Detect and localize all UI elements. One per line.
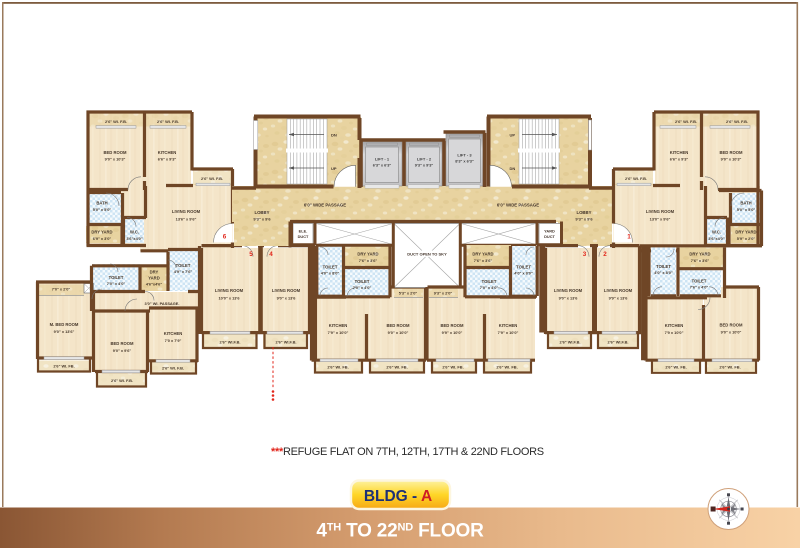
svg-text:2'6" WI. F.B.: 2'6" WI. F.B. [111,378,133,383]
svg-text:W.C.: W.C. [712,230,721,235]
svg-text:2'6" WI. FB.: 2'6" WI. FB. [53,364,74,369]
svg-text:TOILET: TOILET [355,279,370,284]
svg-text:***REFUGE FLAT ON 7TH, 12TH,: ***REFUGE FLAT ON 7TH, 12TH, 17TH & 22ND… [271,446,544,458]
svg-text:LOBBY: LOBBY [254,210,269,215]
svg-text:7'6" x 3'6": 7'6" x 3'6" [359,258,378,263]
svg-text:BED ROOM: BED ROOM [110,341,134,346]
svg-text:7'0" x 2'0": 7'0" x 2'0" [52,287,71,292]
svg-text:2'6" WI. F.B.: 2'6" WI. F.B. [105,119,127,124]
svg-text:7'0" x 4'0": 7'0" x 4'0" [107,281,126,286]
svg-text:DRY YARD: DRY YARD [357,252,378,257]
svg-text:2'6" WI. FB.: 2'6" WI. FB. [719,365,740,370]
svg-text:9'3" x 9'3": 9'3" x 9'3" [415,163,434,168]
svg-text:TOILET: TOILET [109,275,124,280]
svg-text:DRY YARD: DRY YARD [689,252,710,257]
svg-text:BLDG - A: BLDG - A [364,488,432,505]
svg-text:2'6" WI.F.B.: 2'6" WI.F.B. [608,340,629,345]
svg-text:UP: UP [331,166,337,171]
svg-text:LIFT - 2: LIFT - 2 [417,157,432,162]
svg-text:9'3" x 9'6: 9'3" x 9'6 [253,217,271,222]
svg-text:TOILET: TOILET [323,265,338,270]
svg-text:ELE.: ELE. [299,229,308,234]
svg-text:DN: DN [510,166,516,171]
svg-text:5'0" x 5'0": 5'0" x 5'0" [93,207,112,212]
svg-text:LOBBY: LOBBY [576,210,591,215]
svg-text:6'0" WIDE PASSAGE: 6'0" WIDE PASSAGE [497,203,539,208]
svg-text:9'0" x 9'6": 9'0" x 9'6" [113,348,132,353]
svg-text:TOILET: TOILET [516,265,531,270]
svg-text:9'3" x 2'0": 9'3" x 2'0" [434,291,453,296]
svg-text:5'3" x 2'0": 5'3" x 2'0" [399,291,418,296]
svg-text:TOILET: TOILET [482,279,497,284]
svg-text:LIVING ROOM: LIVING ROOM [646,209,675,214]
svg-text:BED ROOM: BED ROOM [719,323,743,328]
svg-text:M. BED ROOM: M. BED ROOM [50,322,79,327]
svg-text:YARD: YARD [544,229,555,234]
svg-text:2'6" WI. F.B.: 2'6" WI. F.B. [162,366,184,371]
svg-text:6'9" x 3'0": 6'9" x 3'0" [93,236,112,241]
svg-text:LIVING ROOM: LIVING ROOM [172,209,201,214]
svg-text:2'6" WI. FB.: 2'6" WI. FB. [442,365,463,370]
svg-text:LIVING ROOM: LIVING ROOM [272,288,301,293]
svg-text:BED ROOM: BED ROOM [719,150,743,155]
svg-text:4'0" x 8'0": 4'0" x 8'0" [514,271,533,276]
svg-text:7'0" x 4'0": 7'0" x 4'0" [480,285,499,290]
svg-text:9'0" x 13'6": 9'0" x 13'6" [54,329,75,334]
svg-text:DUCT: DUCT [544,234,555,239]
svg-text:7'9" x 10'0": 7'9" x 10'0" [498,330,519,335]
svg-text:5'0" x 5'0": 5'0" x 5'0" [737,207,756,212]
svg-text:UP: UP [510,133,516,138]
svg-text:9'3" x 9'6: 9'3" x 9'6 [575,217,593,222]
svg-text:LIFT - 1: LIFT - 1 [375,157,390,162]
svg-text:5: 5 [249,251,253,258]
svg-text:6: 6 [223,234,227,241]
svg-text:9'9" x 10'0": 9'9" x 10'0" [442,330,463,335]
svg-text:KITCHEN: KITCHEN [499,323,518,328]
svg-text:BED ROOM: BED ROOM [386,323,410,328]
svg-text:3'6"x4'0": 3'6"x4'0" [126,236,143,241]
svg-text:2'6" WI.F.B.: 2'6" WI.F.B. [276,340,297,345]
svg-text:KITCHEN: KITCHEN [665,323,684,328]
svg-text:2'6" WI. F.B.: 2'6" WI. F.B. [201,176,223,181]
svg-text:4: 4 [269,251,273,258]
svg-text:2'6" WI. F.B.: 2'6" WI. F.B. [675,119,697,124]
svg-text:3'6"x4'0": 3'6"x4'0" [708,236,725,241]
svg-text:W.C.: W.C. [130,230,139,235]
svg-text:9'0" x 10'0": 9'0" x 10'0" [721,330,742,335]
svg-text:TOILET: TOILET [176,263,191,268]
svg-text:2'6" WI.F.B.: 2'6" WI.F.B. [220,340,241,345]
svg-text:7'6" x 3'6": 7'6" x 3'6" [691,258,710,263]
svg-text:9'0" x 13'6: 9'0" x 13'6 [559,296,579,301]
svg-text:KITCHEN: KITCHEN [164,331,183,336]
svg-text:LIVING ROOM: LIVING ROOM [554,288,583,293]
svg-text:DRY YARD: DRY YARD [91,230,112,235]
svg-text:DRY YARD: DRY YARD [735,230,756,235]
svg-text:KITCHEN: KITCHEN [329,323,348,328]
svg-text:9'0" x 13'6: 9'0" x 13'6 [277,296,297,301]
svg-text:DRY YARD: DRY YARD [472,252,493,257]
svg-text:2'6" WI.F.B.: 2'6" WI.F.B. [560,340,581,345]
svg-text:5'9" x 2'0": 5'9" x 2'0" [737,236,756,241]
svg-text:7'0" x 4'0": 7'0" x 4'0" [353,285,372,290]
svg-text:LIVING ROOM: LIVING ROOM [215,288,244,293]
svg-text:6'0" WIDE PASSAGE: 6'0" WIDE PASSAGE [304,203,346,208]
svg-text:4'0" x 8'0": 4'0" x 8'0" [654,270,673,275]
svg-text:LIVING ROOM: LIVING ROOM [604,288,633,293]
svg-text:2'6" WI. F.B.: 2'6" WI. F.B. [625,176,647,181]
svg-text:YARD: YARD [148,276,159,281]
svg-text:BATH: BATH [740,201,751,206]
svg-text:6'3" x 6'3": 6'3" x 6'3" [373,163,392,168]
svg-text:2'6" WI. FB.: 2'6" WI. FB. [496,365,517,370]
svg-text:2: 2 [603,251,607,258]
svg-text:BED ROOM: BED ROOM [103,150,127,155]
svg-text:10'0" x 13'6: 10'0" x 13'6 [218,296,240,301]
svg-text:BED ROOM: BED ROOM [440,323,464,328]
svg-text:2'6" WI. FB.: 2'6" WI. FB. [327,365,348,370]
svg-text:BATH: BATH [96,201,107,206]
svg-text:KITCHEN: KITCHEN [670,150,689,155]
svg-text:9'0" x 10'0": 9'0" x 10'0" [388,330,409,335]
svg-text:DN: DN [331,133,337,138]
svg-text:3: 3 [583,251,587,258]
svg-text:8'3" x 6'3": 8'3" x 6'3" [455,159,474,164]
svg-text:7'0 x 7'9": 7'0 x 7'9" [165,338,182,343]
svg-text:DRY: DRY [150,270,159,275]
svg-text:1: 1 [627,234,631,241]
svg-text:13'6" x 9'6": 13'6" x 9'6" [176,217,197,222]
svg-text:7'6" x 4'0": 7'6" x 4'0" [690,285,709,290]
svg-text:TOILET: TOILET [656,264,671,269]
svg-text:DUCT OPEN TO SKY: DUCT OPEN TO SKY [407,252,447,257]
svg-text:4'9" x 7'6": 4'9" x 7'6" [174,269,193,274]
svg-text:4'6"x4'6": 4'6"x4'6" [146,282,163,287]
svg-text:2'6" WI. FB.: 2'6" WI. FB. [665,365,686,370]
svg-text:7'9 x 10'0": 7'9 x 10'0" [665,330,684,335]
svg-text:3'0" WI. PASSAGE.: 3'0" WI. PASSAGE. [145,301,180,306]
svg-text:7'6" x 3'6": 7'6" x 3'6" [474,258,493,263]
svg-text:7'9" x 10'0": 7'9" x 10'0" [328,330,349,335]
svg-text:2'6" WI. F.B.: 2'6" WI. F.B. [726,119,748,124]
svg-text:2'6" WI. FB.: 2'6" WI. FB. [386,365,407,370]
svg-text:13'0" x 9'6": 13'0" x 9'6" [650,217,671,222]
svg-text:LIFT - 3: LIFT - 3 [457,153,472,158]
svg-text:TOILET: TOILET [692,279,707,284]
svg-text:9'9" x 13'6: 9'9" x 13'6 [609,296,629,301]
svg-text:6'6" x 9'3": 6'6" x 9'3" [158,157,177,162]
svg-text:KITCHEN: KITCHEN [158,150,177,155]
svg-text:2'6" WI. F.B.: 2'6" WI. F.B. [157,119,179,124]
svg-text:6'6" x 9'3": 6'6" x 9'3" [670,157,689,162]
svg-text:9'0" x 10'3": 9'0" x 10'3" [721,157,742,162]
svg-text:DUCT: DUCT [298,234,309,239]
svg-text:4'0" x 8'0": 4'0" x 8'0" [321,271,340,276]
svg-text:9'0" x 10'3": 9'0" x 10'3" [105,157,126,162]
